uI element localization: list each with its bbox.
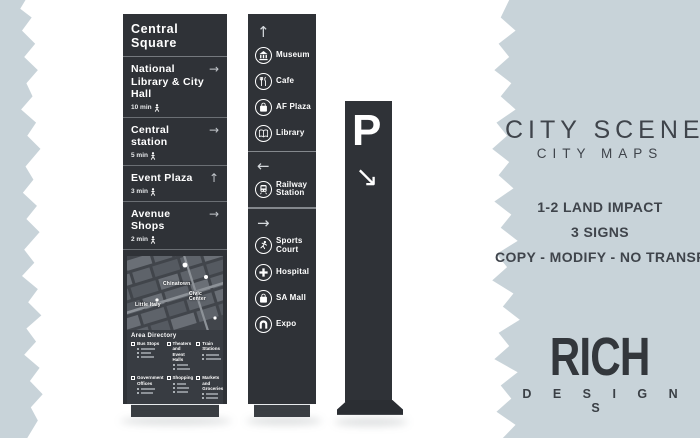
map-label: Chinatown: [163, 282, 190, 288]
poi-item: Museum: [255, 47, 316, 64]
land-impact-text: 1-2 LAND IMPACT: [495, 199, 700, 215]
runner-icon: [255, 237, 272, 254]
left-arrow-icon: ←: [257, 158, 316, 175]
map-marker: [204, 275, 208, 279]
arch-icon: [255, 316, 272, 333]
permissions-text: COPY - MODIFY - NO TRANSFER: [495, 249, 700, 265]
poi-label: SA Mall: [276, 294, 306, 303]
direction-arrow-icon: →: [209, 63, 219, 75]
down-right-arrow-icon: ↘: [355, 163, 392, 191]
map-marker: [183, 262, 188, 267]
directory-category: Shopping: [167, 375, 194, 401]
product-image: Central Square National Library & City H…: [0, 0, 700, 438]
category-checkbox-icon: [131, 342, 135, 346]
directory-category: Train Stations: [196, 341, 223, 373]
poi-item: Cafe: [255, 73, 316, 90]
directory-category: Theaters and Event Halls: [167, 341, 194, 373]
directory-category: Markets and Groceries: [196, 375, 223, 401]
poi-item: SA Mall: [255, 290, 316, 307]
museum-icon: [255, 47, 272, 64]
book-icon: [255, 125, 272, 142]
sign-shadow: [334, 418, 408, 426]
poi-label: Hospital: [276, 268, 309, 277]
brand-logo: RICH D E S I G N S: [505, 330, 695, 415]
category-label: Train Stations: [202, 341, 223, 352]
divider: [248, 151, 316, 153]
category-checkbox-icon: [131, 376, 135, 380]
poi-item: Expo: [255, 316, 316, 333]
directory-category: Government Offices: [131, 375, 164, 401]
cafe-icon: [255, 73, 272, 90]
poi-label: Museum: [276, 51, 310, 60]
category-label: Theaters and Event Halls: [173, 341, 194, 363]
brand-name: RICH: [550, 327, 650, 389]
poi-item: AF Plaza: [255, 99, 316, 116]
category-label: Government Offices: [137, 375, 164, 386]
poi-label: Railway Station: [276, 181, 310, 199]
destination-name: Central station: [131, 124, 206, 149]
product-title: CITY SCENES: [505, 116, 695, 145]
street-map: Chinatown Civic Center Little Italy Area…: [127, 256, 223, 404]
wayfinding-sign: Central Square National Library & City H…: [123, 14, 227, 404]
poi-label: Cafe: [276, 77, 294, 86]
destination-name: National Library & City Hall: [131, 63, 206, 101]
shopping-bag-icon: [255, 99, 272, 116]
category-checkbox-icon: [167, 376, 171, 380]
walk-icon: [150, 236, 156, 244]
sign-title: Central Square: [123, 14, 227, 57]
cross-icon: [255, 264, 272, 281]
category-label: Shopping: [173, 375, 194, 380]
sign-base: [131, 404, 219, 417]
category-checkbox-icon: [196, 342, 200, 346]
divider: [248, 207, 316, 209]
poi-label: Expo: [276, 320, 296, 329]
destination-name: Event Plaza: [131, 172, 206, 185]
walk-icon: [150, 152, 156, 160]
train-icon: [255, 181, 272, 198]
shopping-bag-icon: [255, 290, 272, 307]
destination-name: Avenue Shops: [131, 208, 206, 233]
up-arrow-icon: ↑: [257, 24, 316, 41]
poi-direction-sign: ↑ Museum Cafe AF Plaza Library ←: [248, 14, 316, 404]
direction-arrow-icon: ↑: [209, 172, 219, 184]
paint-stroke-left: [0, 0, 44, 438]
map-marker: [213, 316, 216, 319]
parking-letter: P: [352, 109, 392, 153]
destination-entry: National Library & City Hall → 10 min: [123, 57, 227, 118]
map-label: Civic Center: [189, 292, 209, 303]
destination-entry: Central station → 5 min: [123, 118, 227, 166]
sign-shadow: [246, 417, 322, 425]
direction-arrow-icon: →: [209, 208, 219, 220]
poi-label: Library: [276, 129, 305, 138]
area-directory: Area Directory Bus Stops Theaters and Ev…: [127, 330, 223, 404]
map-marker: [155, 298, 158, 301]
direction-arrow-icon: →: [209, 124, 219, 136]
sign-base: [254, 404, 310, 417]
walk-icon: [154, 104, 160, 112]
right-arrow-icon: →: [257, 215, 316, 232]
destination-entry: Avenue Shops → 2 min: [123, 202, 227, 250]
category-label: Bus Stops: [137, 341, 159, 346]
product-subtitle: CITY MAPS: [505, 146, 695, 161]
directory-category: Bus Stops: [131, 341, 164, 373]
sign-count-text: 3 SIGNS: [495, 224, 700, 240]
poi-item: Hospital: [255, 264, 316, 281]
area-directory-title: Area Directory: [131, 333, 219, 339]
walk-time: 3 min: [131, 188, 148, 195]
brand-subtitle: D E S I G N S: [505, 387, 695, 415]
poi-item: Library: [255, 125, 316, 142]
poi-item: Sports Court: [255, 237, 316, 255]
sign-shadow: [120, 417, 232, 425]
category-checkbox-icon: [196, 376, 200, 380]
poi-label: AF Plaza: [276, 103, 311, 112]
parking-sign: P ↘: [345, 101, 392, 402]
category-label: Markets and Groceries: [202, 375, 223, 391]
walk-icon: [150, 188, 156, 196]
walk-time: 10 min: [131, 104, 152, 111]
destination-entry: Event Plaza ↑ 3 min: [123, 166, 227, 202]
map-label: Little Italy: [135, 303, 161, 309]
walk-time: 2 min: [131, 236, 148, 243]
sign-base: [337, 400, 403, 419]
poi-item: Railway Station: [255, 181, 316, 199]
walk-time: 5 min: [131, 152, 148, 159]
category-checkbox-icon: [167, 342, 171, 346]
poi-label: Sports Court: [276, 237, 310, 255]
